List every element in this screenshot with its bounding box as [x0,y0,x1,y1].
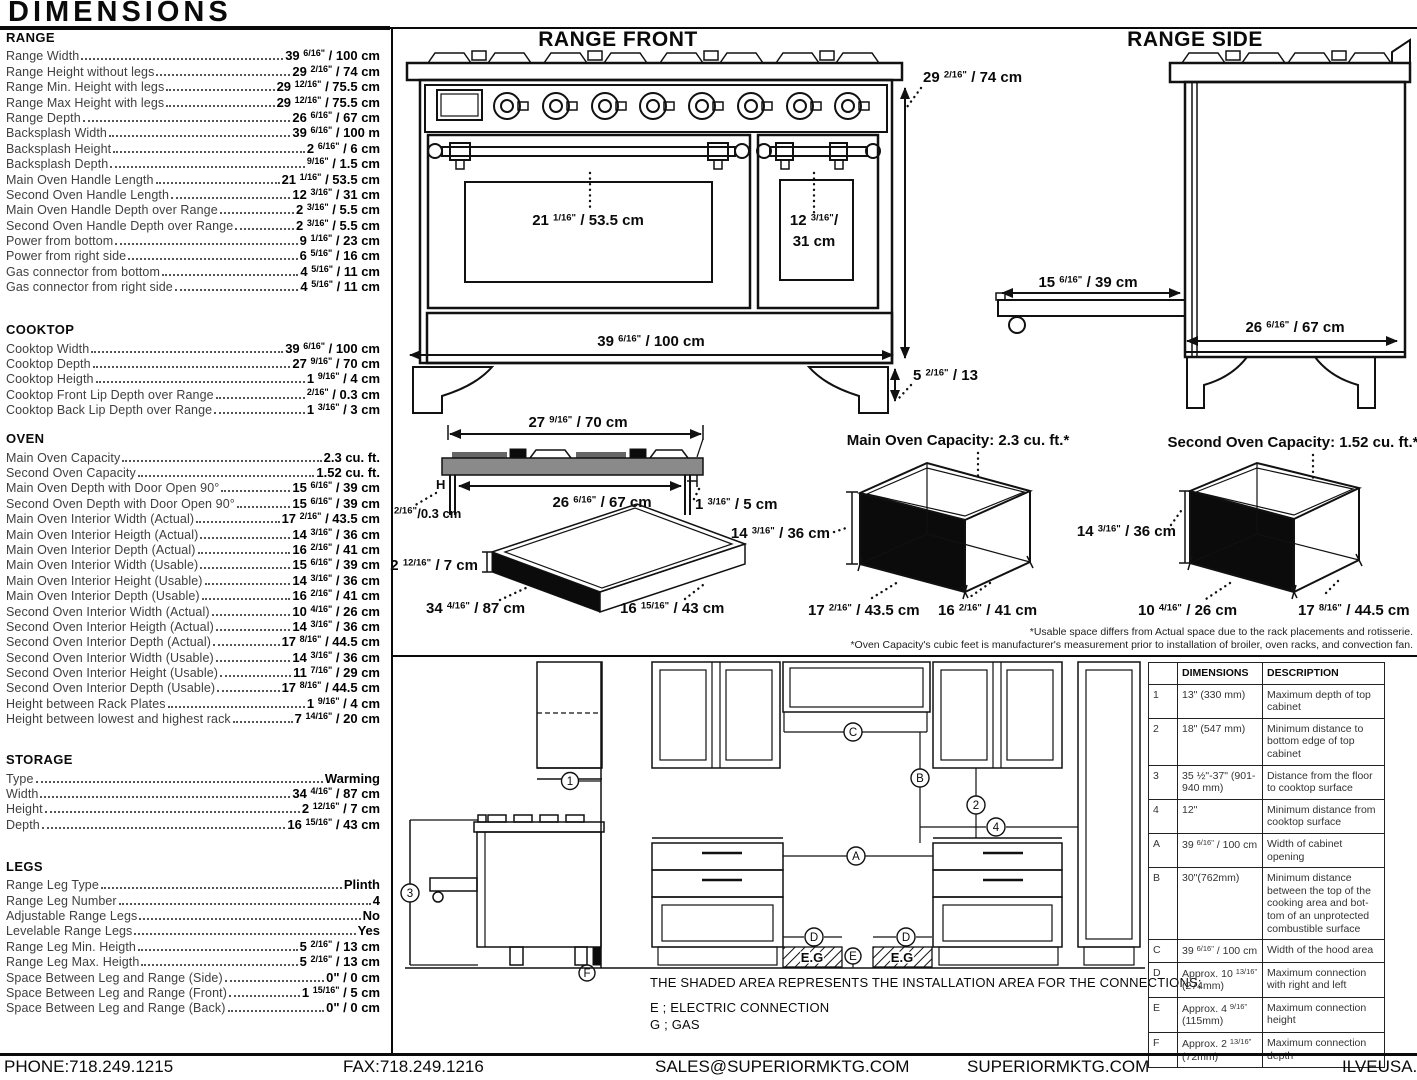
dotted-leader [110,166,305,168]
table-row: A39 6/16" / 100 cmWidth of cabinet openi… [1149,833,1385,867]
burner-grates-side [1182,51,1391,63]
spec-value: 2/16" / 0.3 cm [307,387,380,402]
table-row: B30"(762mm)Minimum distance between the … [1149,868,1385,940]
table-desc-cell: Maximum connection height [1263,997,1385,1032]
spec-label: Second Oven Capacity [6,466,136,480]
mini-open-shelf [430,878,477,891]
spec-value: 4 5/16" / 11 cm [300,279,380,294]
dotted-leader [45,811,300,813]
burner-grates-front [428,51,879,63]
spec-value: 0" / 0 cm [326,970,380,985]
spec-row: Second Oven Interior Width (Actual)10 4/… [6,603,380,618]
spec-row: Second Oven Handle Depth over Range2 3/1… [6,217,380,232]
footer-brand-site[interactable]: ILVEUSA.COM [1342,1057,1417,1077]
knob [835,93,869,119]
spec-label: Width [6,787,38,801]
main-oven-handle [428,143,749,169]
spec-row: Second Oven Interior Depth (Actual)17 8/… [6,634,380,649]
second-oven-window [780,180,853,280]
spec-value: 14 3/16" / 36 cm [292,527,380,542]
dotted-leader [138,949,298,951]
spec-label: Height between Rack Plates [6,697,166,711]
knob [787,93,821,119]
table-desc-cell: Width of the hood area [1263,940,1385,963]
spec-value: 5 2/16" / 13 cm [300,954,380,969]
knob [592,93,626,119]
dotted-leader [168,706,305,708]
spec-label: Second Oven Interior Width (Usable) [6,651,214,665]
front-lip-dim: 2/16" /0.3 cm [394,506,461,522]
front-right-leg [809,367,888,413]
spec-value: 39 6/16" / 100 cm [285,48,380,63]
spec-row: Main Oven Interior Depth (Usable)16 2/16… [6,588,380,603]
footnote-1: *Usable space differs from Actual space … [773,626,1413,639]
spec-label: Height between lowest and highest rack [6,712,231,726]
hood-area-cabinet [783,662,930,712]
table-row: 335 ½"-37" (901-940 mm)Distance from the… [1149,765,1385,799]
main-oven-window [465,182,712,282]
spec-label: Main Oven Interior Height (Usable) [6,574,203,588]
spec-row: Levelable Range LegsYes [6,923,380,938]
spec-value: No [363,908,380,923]
spec-value: 7 14/16" / 20 cm [295,711,380,726]
main-oven-depth-dim: 16 2/16" / 41 cm [938,602,1037,619]
main-oven-capacity-title: Main Oven Capacity: 2.3 cu. ft.* [847,432,1070,449]
dotted-leader [198,552,291,554]
spec-value: Yes [358,923,380,938]
spec-row: Cooktop Back Lip Depth over Range1 3/16"… [6,402,380,417]
spec-value: 17 8/16" / 44.5 cm [282,680,380,695]
section-header: LEGS [6,859,380,875]
table-row: 218" (547 mm)Minimum distance to bottom … [1149,718,1385,765]
dotted-leader [237,506,291,508]
footer-phone: PHONE:718.249.1215 [4,1057,173,1077]
dimensions-table: DIMENSIONSDESCRIPTION113" (330 mm)Maximu… [1148,662,1385,1068]
dotted-leader [81,58,283,60]
capacity-footnotes: *Usable space differs from Actual space … [773,626,1413,651]
back-lip-dim: 1 3/16" / 5 cm [695,496,777,513]
spec-row: Second Oven Interior Width (Usable)14 3/… [6,649,380,664]
table-id-cell: 3 [1149,765,1178,799]
spec-row: Range Leg Max. Heigth5 2/16" / 13 cm [6,954,380,969]
knob [689,93,723,119]
dotted-leader [156,74,290,76]
spec-row: Adjustable Range LegsNo [6,908,380,923]
installation-side-view: 1 F 3 [401,662,604,981]
dotted-leader [119,903,371,905]
spec-row: Range Min. Height with legs29 12/16" / 7… [6,79,380,94]
table-id-cell: 4 [1149,799,1178,833]
spec-label: Power from right side [6,249,126,263]
dotted-leader [171,197,290,199]
spec-value: 1 9/16" / 4 cm [307,696,380,711]
spec-row: Cooktop Width39 6/16" / 100 cm [6,340,380,355]
spec-label: Cooktop Heigth [6,372,94,386]
table-desc-cell: Minimum distance from cooktop surface [1263,799,1385,833]
table-id-cell: 2 [1149,718,1178,765]
dotted-leader [128,258,297,260]
spec-label: Cooktop Back Lip Depth over Range [6,403,212,417]
dotted-leader [141,964,297,966]
dotted-leader [166,105,274,107]
control-panel [425,85,887,132]
marker-c: C [849,727,857,739]
spec-value: 11 7/16" / 29 cm [293,665,380,680]
spec-label: Range Leg Type [6,878,99,892]
footnote-2: *Oven Capacity's cubic feet is manufactu… [773,639,1413,652]
marker-a: A [852,851,860,863]
side-front-leg [1187,357,1247,408]
spec-row: Height between lowest and highest rack7 … [6,711,380,726]
spec-value: 2 3/16" / 5.5 cm [296,202,380,217]
spec-label: Range Width [6,49,79,63]
spec-row: Second Oven Interior Heigth (Actual)14 3… [6,619,380,634]
dotted-leader [175,289,299,291]
spec-label: Main Oven Interior Depth (Actual) [6,543,196,557]
spec-value: 4 5/16" / 11 cm [300,264,380,279]
dotted-leader [40,796,290,798]
spec-section-storage: STORAGETypeWarmingWidth34 4/16" / 87 cmH… [6,752,380,832]
footer-rule [0,1053,1417,1056]
spec-label: Gas connector from right side [6,280,173,294]
spec-row: Main Oven Interior Heigth (Actual)14 3/1… [6,526,380,541]
spec-label: Main Oven Capacity [6,451,120,465]
spec-row: Space Between Leg and Range (Back)0" / 0… [6,1000,380,1015]
marker-e: E [849,951,857,963]
spec-row: Power from right side6 5/16" / 16 cm [6,248,380,263]
open-door-shelf [998,300,1185,316]
spec-value: 10 4/16" / 26 cm [292,604,380,619]
dotted-leader [101,887,342,889]
spec-row: Backsplash Height2 6/16" / 6 cm [6,140,380,155]
cooktop-width-dim: 27 9/16" / 70 cm [528,414,627,431]
drawer-depth-dim: 16 15/16" / 43 cm [620,600,724,617]
spec-value: 16 2/16" / 41 cm [292,588,380,603]
spec-row: Gas connector from right side4 5/16" / 1… [6,279,380,294]
spec-row: Main Oven Capacity2.3 cu. ft. [6,449,380,464]
dotted-leader [196,521,279,523]
table-dim-cell: Approx. 2 13/16" (72mm) [1178,1033,1263,1068]
table-header-row: DIMENSIONSDESCRIPTION [1149,663,1385,685]
spec-row: Cooktop Depth27 9/16" / 70 cm [6,356,380,371]
spec-row: Backsplash Depth9/16" / 1.5 cm [6,156,380,171]
marker-d2: D [902,932,910,944]
spec-row: Main Oven Handle Length21 1/16" / 53.5 c… [6,171,380,186]
dotted-leader [235,228,294,230]
spec-row: Range Max Height with legs29 12/16" / 75… [6,94,380,109]
table-dim-cell: 39 6/16" / 100 cm [1178,833,1263,867]
table-dim-cell: 39 6/16" / 100 cm [1178,940,1263,963]
spec-label: Space Between Leg and Range (Side) [6,971,223,985]
spec-row: Range Width39 6/16" / 100 cm [6,48,380,63]
spec-value: 0" / 0 cm [326,1000,380,1015]
marker-f: F [583,968,590,980]
dotted-leader [225,980,324,982]
table-dim-cell: Approx. 4 9/16" (115mm) [1178,997,1263,1032]
dimensions-sheet: DIMENSIONS RANGERange Width39 6/16" / 10… [0,0,1417,1080]
spec-label: Height [6,802,43,816]
dotted-leader [202,598,291,600]
table-desc-cell: Maximum connection with right and left [1263,962,1385,997]
spec-label: Second Oven Handle Depth over Range [6,219,233,233]
spec-row: Main Oven Interior Height (Usable)14 3/1… [6,572,380,587]
marker-3: 3 [407,888,413,900]
table-id-cell: A [1149,833,1178,867]
spec-label: Range Leg Max. Heigth [6,955,139,969]
dotted-leader [122,460,321,462]
spec-row: Cooktop Front Lip Depth over Range2/16" … [6,386,380,401]
spec-row: Second Oven Handle Length12 3/16" / 31 c… [6,187,380,202]
spec-value: 2 6/16" / 6 cm [307,141,380,156]
table-desc-cell: Distance from the floor to cooktop surfa… [1263,765,1385,799]
table-desc-cell: Minimum distance to bottom edge of top c… [1263,718,1385,765]
table-row: C39 6/16" / 100 cmWidth of the hood area [1149,940,1385,963]
second-handle-dim-2: 31 cm [793,233,836,250]
footer-email[interactable]: SALES@SUPERIORMKTG.COM [655,1057,909,1077]
dotted-leader [220,675,291,677]
spec-row: Second Oven Capacity1.52 cu. ft. [6,465,380,480]
table-desc-cell: Minimum distance between the top of the … [1263,868,1385,940]
section-header: RANGE [6,30,380,46]
table-dim-cell: 13" (330 mm) [1178,684,1263,718]
spec-label: Second Oven Interior Heigth (Actual) [6,620,214,634]
spec-label: Second Oven Interior Depth (Actual) [6,635,211,649]
spec-label: Main Oven Handle Length [6,173,154,187]
spec-section-cooktop: COOKTOPCooktop Width39 6/16" / 100 cmCoo… [6,322,380,417]
spec-row: Main Oven Depth with Door Open 90°15 6/1… [6,480,380,495]
knob [738,93,772,119]
dotted-leader [205,583,291,585]
dotted-leader [83,120,291,122]
table-id-cell: E [1149,997,1178,1032]
leg-height-dim: 5 2/16" / 13 [913,367,978,384]
spec-label: Backsplash Depth [6,157,108,171]
table-desc-cell: Maximum depth of top cabinet [1263,684,1385,718]
spec-value: 15 6/16" / 39 cm [292,557,380,572]
spec-row: Second Oven Depth with Door Open 90°15 6… [6,495,380,510]
range-front-title: RANGE FRONT [538,28,698,51]
spec-value: 17 2/16" / 43.5 cm [282,511,380,526]
spec-row: Range Leg Min. Heigth5 2/16" / 13 cm [6,938,380,953]
spec-row: Main Oven Interior Depth (Actual)16 2/16… [6,542,380,557]
table-header-cell [1149,663,1178,685]
table-header-cell: DESCRIPTION [1263,663,1385,685]
dotted-leader [229,995,300,997]
range-front-diagram: RANGE FRONT [407,28,1022,413]
spec-label: Levelable Range Legs [6,924,132,938]
table-dim-cell: 12" [1178,799,1263,833]
spec-row: Range Height without legs29 2/16" / 74 c… [6,63,380,78]
spec-label: Main Oven Interior Heigth (Actual) [6,528,198,542]
dotted-leader [228,1010,325,1012]
section-header: COOKTOP [6,322,380,338]
spec-label: Backsplash Width [6,126,107,140]
table-desc-cell: Width of cabinet opening [1263,833,1385,867]
spec-label: Cooktop Depth [6,357,91,371]
spec-value: 21 1/16" / 53.5 cm [282,172,380,187]
legend-electric: E ; ELECTRIC CONNECTION [650,1000,829,1015]
second-oven-handle [757,143,880,169]
second-oven-width-dim: 10 4/16" / 26 cm [1138,602,1237,619]
spec-value: 9 1/16" / 23 cm [300,233,380,248]
marker-d: D [810,932,818,944]
dotted-leader [115,243,297,245]
dotted-leader [96,381,305,383]
dotted-leader [113,151,305,153]
spec-label: Second Oven Handle Length [6,188,169,202]
main-oven-width-dim: 17 2/16" / 43.5 cm [808,602,920,619]
spec-value: 1 15/16" / 5 cm [302,985,380,1000]
dotted-leader [217,690,279,692]
dotted-leader [216,660,291,662]
table-dim-cell: 30"(762mm) [1178,868,1263,940]
spec-value: 15 6/16" / 39 cm [292,480,380,495]
spec-label: Main Oven Interior Depth (Usable) [6,589,200,603]
spec-value: Plinth [344,877,380,892]
spec-value: 29 12/16" / 75.5 cm [277,95,380,110]
front-left-leg [413,367,492,413]
table-dim-cell: 35 ½"-37" (901-940 mm) [1178,765,1263,799]
spec-label: Main Oven Handle Depth over Range [6,203,218,217]
dotted-leader [36,781,323,783]
tall-cabinet [1078,662,1140,947]
spec-value: 26 6/16" / 67 cm [292,110,380,125]
table-id-cell: D [1149,962,1178,997]
spec-label: Depth [6,818,40,832]
spec-value: 9/16" / 1.5 cm [307,156,380,171]
spec-row: Main Oven Interior Width (Actual)17 2/16… [6,511,380,526]
spec-label: Cooktop Front Lip Depth over Range [6,388,214,402]
knob [640,93,674,119]
spec-label: Range Leg Min. Heigth [6,940,136,954]
spec-row: Cooktop Heigth1 9/16" / 4 cm [6,371,380,386]
range-side-title: RANGE SIDE [1127,28,1263,51]
spec-row: Range Leg TypePlinth [6,877,380,892]
main-handle-dim: 21 1/16" / 53.5 cm [532,212,644,229]
dotted-leader [162,274,298,276]
dotted-leader [233,721,293,723]
spec-value: 15 6/16" / 39 cm [292,496,380,511]
drawer-width-dim: 34 4/16" / 87 cm [426,600,525,617]
spec-value: 1 3/16" / 3 cm [307,402,380,417]
spec-row: Second Oven Interior Height (Usable)11 7… [6,665,380,680]
door-depth-dim: 15 6/16" / 39 cm [1038,274,1137,291]
cooktop-h-label: H [436,477,445,492]
spec-label: Space Between Leg and Range (Front) [6,986,227,1000]
table-id-cell: 1 [1149,684,1178,718]
spec-value: 2 3/16" / 5.5 cm [296,218,380,233]
spec-label: Main Oven Interior Width (Usable) [6,558,198,572]
cooktop-profile-diagram: 27 9/16" / 70 cm H 2/16" /0.3 cm 26 6/16… [394,414,777,521]
spec-label: Power from bottom [6,234,113,248]
spec-label: Backsplash Height [6,142,111,156]
footer-fax: FAX:718.249.1216 [343,1057,484,1077]
dotted-leader [166,89,274,91]
spec-row: Depth16 15/16" / 43 cm [6,816,380,831]
spec-value: 14 3/16" / 36 cm [292,573,380,588]
spec-value: 29 2/16" / 74 cm [292,64,380,79]
dotted-leader [200,567,290,569]
spec-value: 2 12/16" / 7 cm [302,801,380,816]
cooktop-slab [442,458,703,475]
table-row: 113" (330 mm)Maximum depth of top cabine… [1149,684,1385,718]
legend-gas: G ; GAS [650,1017,700,1032]
spec-label: Range Leg Number [6,894,117,908]
dotted-leader [216,397,305,399]
spec-label: Second Oven Interior Depth (Usable) [6,681,215,695]
spec-label: Type [6,772,34,786]
spec-row: Height2 12/16" / 7 cm [6,801,380,816]
spec-row: Main Oven Handle Depth over Range2 3/16"… [6,202,380,217]
table-dim-cell: Approx. 10 13/16" (274mm) [1178,962,1263,997]
dotted-leader [214,412,305,414]
dotted-leader [42,827,286,829]
spec-label: Cooktop Width [6,342,89,356]
marker-b: B [916,773,924,785]
dotted-leader [213,644,280,646]
spec-label: Main Oven Interior Width (Actual) [6,512,194,526]
spec-value: 39 6/16" / 100 m [292,125,380,140]
table-row: EApprox. 4 9/16" (115mm)Maximum connecti… [1149,997,1385,1032]
spec-value: 27 9/16" / 70 cm [292,356,380,371]
spec-value: 16 15/16" / 43 cm [287,817,380,832]
side-depth-dim: 26 6/16" / 67 cm [1245,319,1344,336]
spec-row: Range Leg Number4 [6,892,380,907]
footer-website[interactable]: SUPERIORMKTG.COM [967,1057,1149,1077]
spec-value: 17 8/16" / 44.5 cm [282,634,380,649]
main-oven-height-dim: 14 3/16" / 36 cm [731,525,830,542]
side-counter [1170,63,1410,82]
spec-label: Range Height without legs [6,65,154,79]
marker-4: 4 [993,822,1000,834]
spec-value: 1 9/16" / 4 cm [307,371,380,386]
spec-value: 5 2/16" / 13 cm [300,939,380,954]
dotted-leader [109,135,290,137]
dotted-leader [134,933,355,935]
table-id-cell: B [1149,868,1178,940]
spec-label: Second Oven Depth with Door Open 90° [6,497,235,511]
spec-label: Range Depth [6,111,81,125]
spec-row: Power from bottom9 1/16" / 23 cm [6,233,380,248]
spec-label: Second Oven Interior Width (Actual) [6,605,210,619]
table-row: 412"Minimum distance from cooktop surfac… [1149,799,1385,833]
range-height-dim: 29 2/16" / 74 cm [923,69,1022,86]
cooktop-band [407,63,902,80]
spec-sections: RANGERange Width39 6/16" / 100 cmRange H… [6,30,380,1015]
range-side-diagram: RANGE SIDE 15 6/16" / 39 cm 26 6/16" / 6… [996,28,1410,408]
spec-row: Backsplash Width39 6/16" / 100 m [6,125,380,140]
spec-value: 2.3 cu. ft. [324,450,380,465]
second-oven-depth-dim: 17 8/16" / 44.5 cm [1298,602,1410,619]
dotted-leader [212,614,291,616]
spec-value: 29 12/16" / 75.5 cm [277,79,380,94]
second-handle-dim-1: 12 3/16" / [790,212,839,229]
dotted-leader [200,537,290,539]
spec-label: Adjustable Range Legs [6,909,137,923]
table-header-cell: DIMENSIONS [1178,663,1263,685]
table-row: DApprox. 10 13/16" (274mm)Maximum connec… [1149,962,1385,997]
spec-label: Second Oven Interior Height (Usable) [6,666,218,680]
page-title: DIMENSIONS [8,0,232,29]
spec-value: 12 3/16" / 31 cm [292,187,380,202]
spec-label: Range Min. Height with legs [6,80,164,94]
spec-label: Main Oven Depth with Door Open 90° [6,481,219,495]
spec-value: 14 3/16" / 36 cm [292,650,380,665]
spec-section-legs: LEGSRange Leg TypePlinthRange Leg Number… [6,859,380,1016]
shaded-label: E.G [891,950,913,965]
table-dim-cell: 18" (547 mm) [1178,718,1263,765]
knob [543,93,577,119]
